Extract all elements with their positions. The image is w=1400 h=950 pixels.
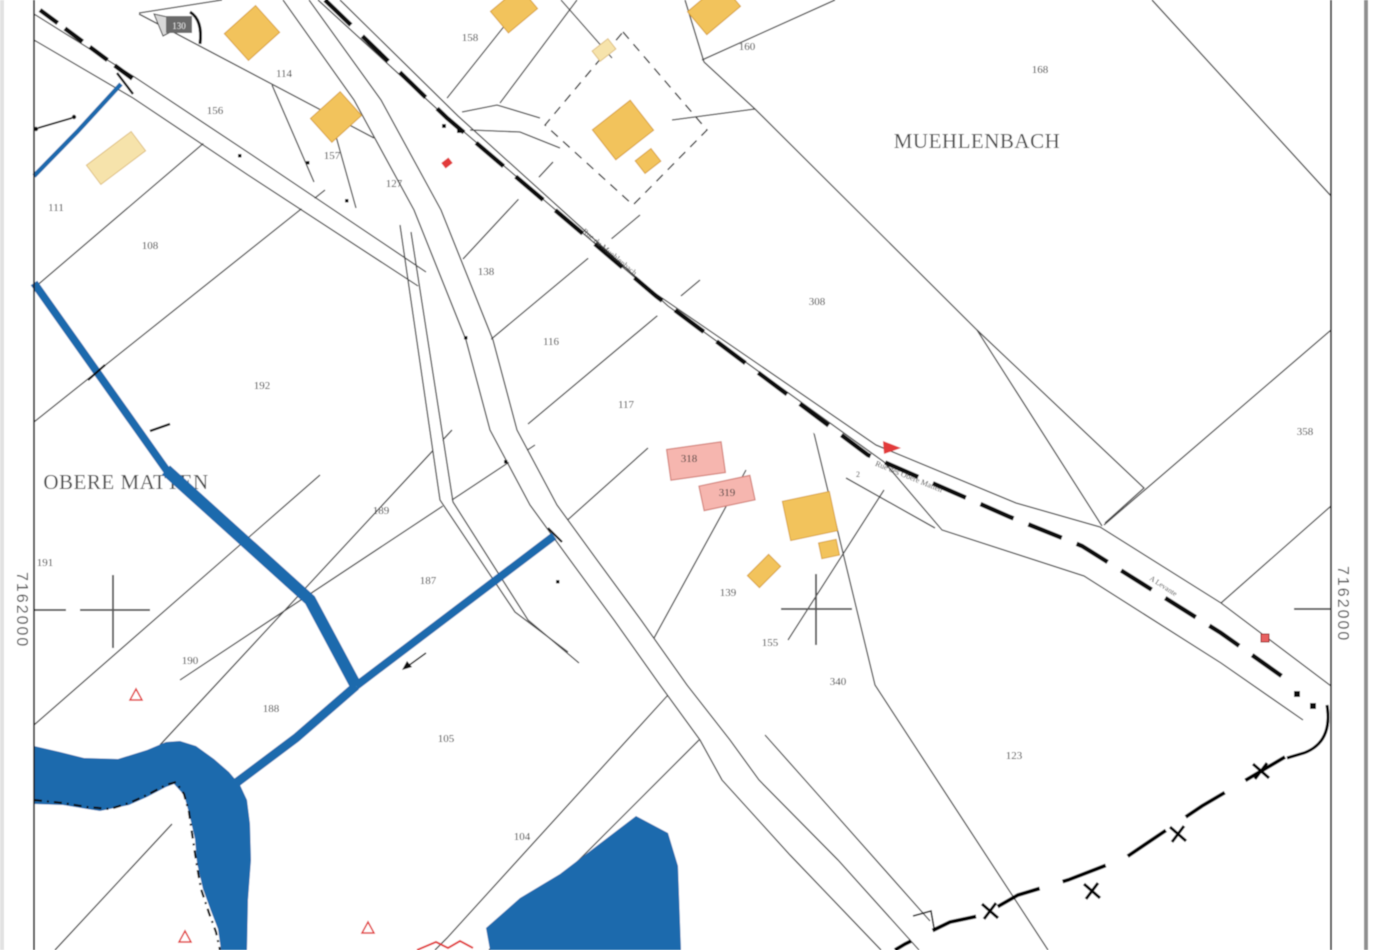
svg-text:189: 189 [373, 505, 390, 517]
svg-text:104: 104 [514, 831, 531, 843]
svg-text:308: 308 [809, 296, 826, 308]
svg-text:187: 187 [420, 575, 437, 587]
svg-text:160: 160 [739, 41, 756, 53]
svg-text:158: 158 [462, 32, 479, 44]
svg-text:111: 111 [48, 202, 64, 214]
svg-text:105: 105 [438, 733, 455, 745]
svg-text:156: 156 [207, 105, 224, 117]
svg-text:127: 127 [386, 178, 403, 190]
svg-text:188: 188 [263, 703, 280, 715]
svg-text:7162000: 7162000 [13, 572, 30, 648]
svg-text:155: 155 [762, 637, 779, 649]
svg-text:319: 319 [719, 487, 736, 499]
svg-text:2: 2 [856, 470, 860, 479]
svg-text:116: 116 [543, 336, 560, 348]
svg-text:MUEHLENBACH: MUEHLENBACH [894, 129, 1061, 153]
svg-text:157: 157 [324, 150, 341, 162]
svg-text:340: 340 [830, 676, 847, 688]
svg-text:123: 123 [1006, 750, 1023, 762]
svg-text:138: 138 [478, 266, 495, 278]
svg-text:130: 130 [172, 21, 186, 31]
svg-text:7162000: 7162000 [1334, 566, 1351, 642]
svg-text:192: 192 [254, 380, 271, 392]
svg-text:139: 139 [720, 587, 737, 599]
svg-text:191: 191 [37, 557, 54, 569]
svg-text:168: 168 [1032, 64, 1049, 76]
svg-text:358: 358 [1297, 426, 1314, 438]
svg-text:117: 117 [618, 399, 635, 411]
svg-text:114: 114 [276, 68, 293, 80]
svg-text:190: 190 [182, 655, 199, 667]
svg-text:108: 108 [142, 240, 159, 252]
svg-text:318: 318 [681, 453, 698, 465]
